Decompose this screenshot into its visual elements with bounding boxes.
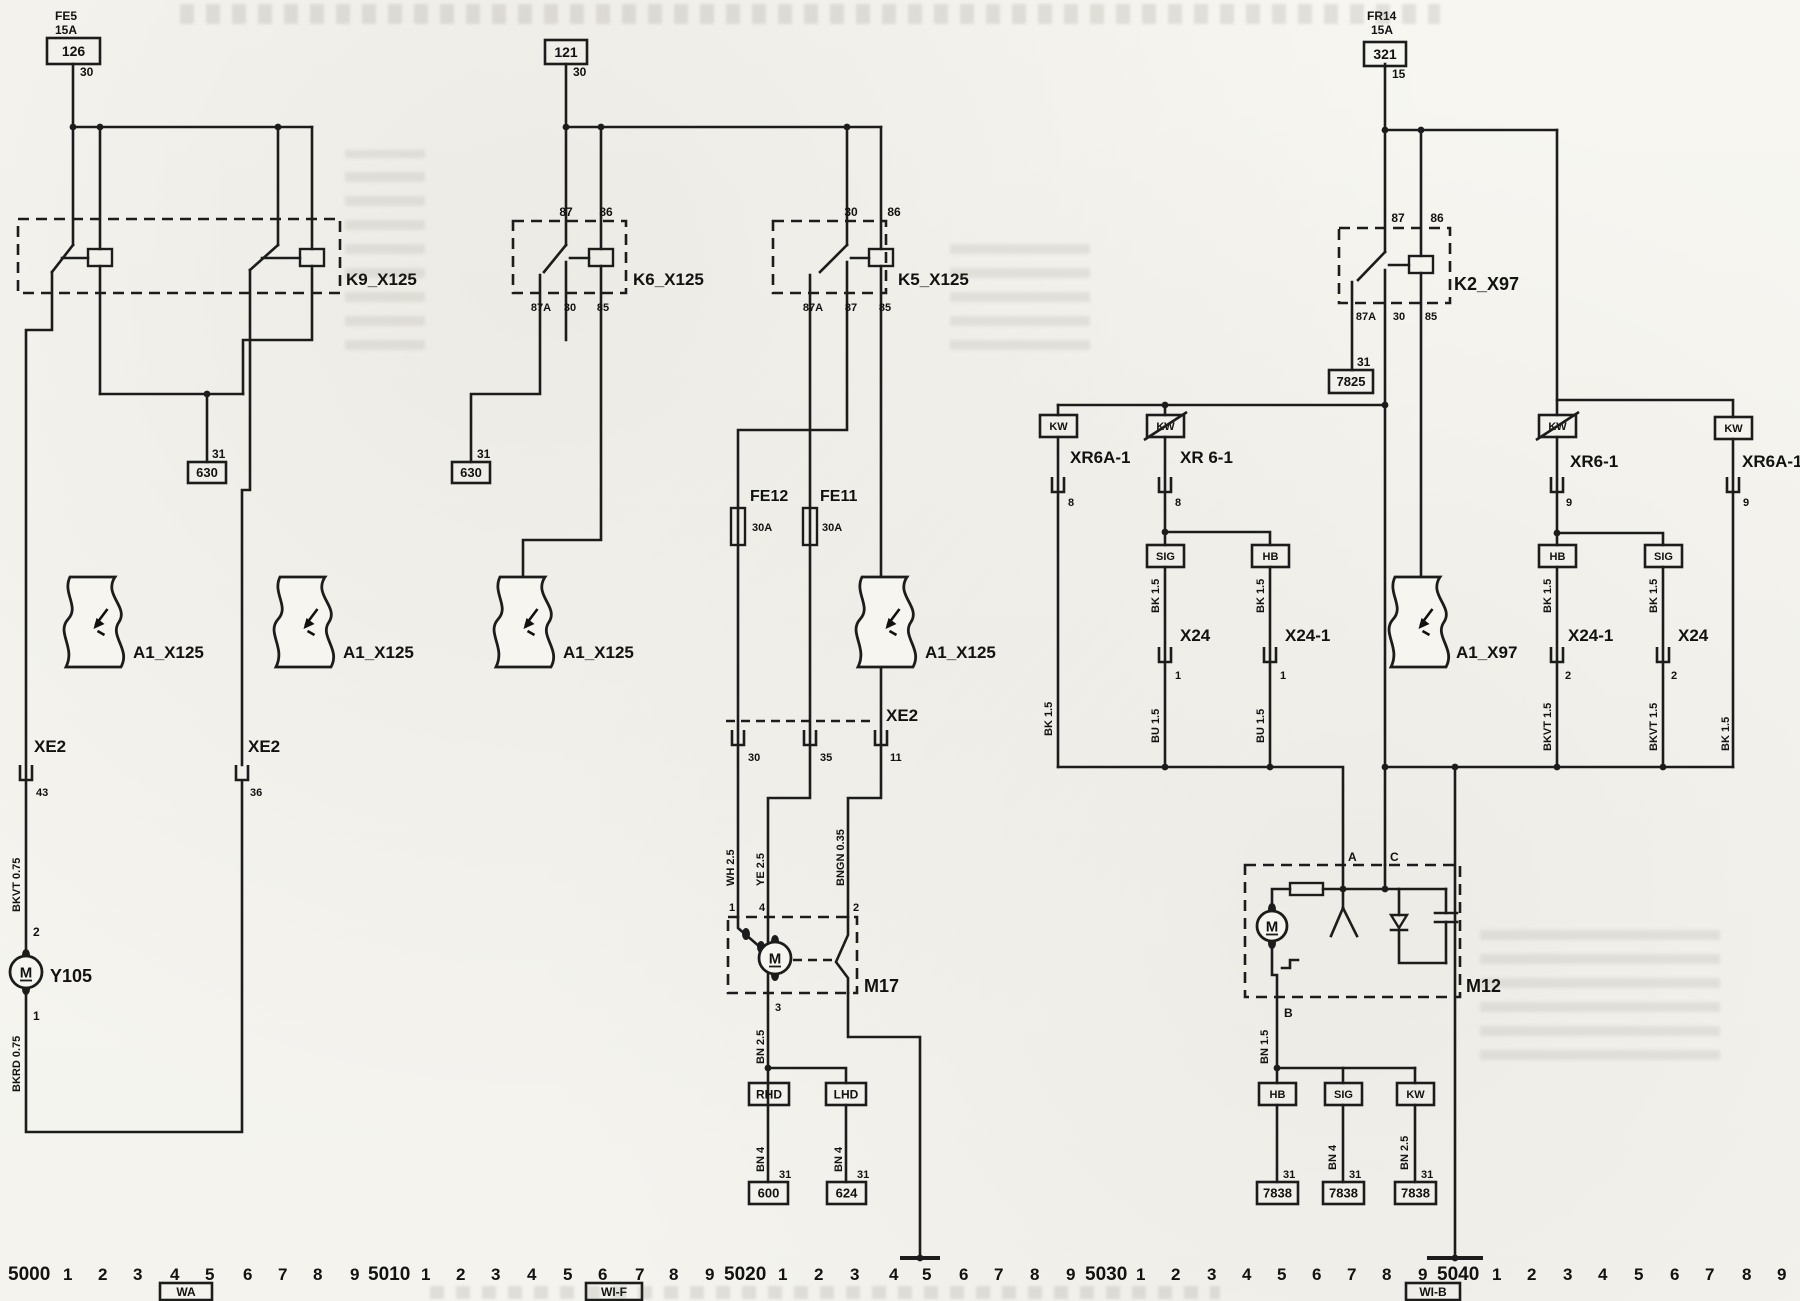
junction-dot (1452, 764, 1459, 771)
label-xr6-1: XR6-1 (1570, 452, 1618, 471)
track-number: 9 (1066, 1265, 1075, 1284)
track-number: 5000 (8, 1264, 50, 1285)
label-bk-1-5: BK 1.5 (1648, 579, 1660, 613)
wire-m12-step (1282, 960, 1298, 968)
ground-box-630-left-label: 630 (196, 465, 218, 480)
junction-dot (1162, 529, 1169, 536)
label-ye-2-5: YE 2.5 (755, 853, 767, 886)
junction-dot (844, 124, 851, 131)
label-30a: 30A (822, 522, 842, 534)
ground-box-624-label: 624 (836, 1186, 858, 1201)
track-number: 5 (922, 1265, 931, 1284)
junction-dot (1162, 764, 1169, 771)
relay-coil (589, 249, 613, 266)
label-bk-1-5: BK 1.5 (1542, 579, 1554, 613)
label-xe2: XE2 (248, 737, 280, 756)
track-number: 3 (491, 1265, 500, 1284)
label-bu-1-5: BU 1.5 (1255, 709, 1267, 743)
label-31: 31 (1349, 1169, 1361, 1181)
label-30: 30 (844, 205, 858, 219)
schematic-svg: 1261213216306307825600624783878387838KWK… (0, 0, 1800, 1301)
label-8: 8 (1068, 497, 1074, 509)
label-k2-x97: K2_X97 (1454, 274, 1519, 294)
label-a1-x125: A1_X125 (925, 643, 996, 662)
track-number: 2 (814, 1265, 823, 1284)
tear-a1x125-1 (64, 577, 124, 667)
track-number: 5030 (1085, 1264, 1127, 1285)
track-number: 1 (1136, 1265, 1145, 1284)
label-fe5: FE5 (55, 9, 77, 23)
ground-box-7838-c-label: 7838 (1401, 1186, 1430, 1201)
label-87: 87 (559, 205, 573, 219)
code-box-121-label: 121 (554, 44, 578, 60)
label-87a: 87A (1356, 311, 1376, 323)
track-number: 7 (635, 1265, 644, 1284)
track-number: 4 (170, 1265, 180, 1284)
wire-m17-pin2-int (836, 917, 848, 993)
tear-a1x125-3 (494, 577, 554, 667)
label-9: 9 (1743, 497, 1749, 509)
relay-coil (300, 249, 324, 266)
code-box-sig-r-label: SIG (1654, 551, 1673, 563)
label-bngn-0-35: BNGN 0.35 (835, 829, 847, 886)
label-x24: X24 (1678, 626, 1709, 645)
label-30a: 30A (752, 522, 772, 534)
harness-box-wa-label: WA (176, 1285, 196, 1299)
ground-box-600-label: 600 (758, 1186, 780, 1201)
track-number: 4 (527, 1265, 537, 1284)
track-number: 5040 (1437, 1264, 1479, 1285)
track-number: 4 (1598, 1265, 1608, 1284)
label-x24-1: X24-1 (1568, 626, 1613, 645)
track-number: 3 (850, 1265, 859, 1284)
label-bn-2-5: BN 2.5 (755, 1030, 767, 1064)
label-31: 31 (477, 447, 491, 461)
code-box-hb-b-label: HB (1270, 1089, 1286, 1101)
label-bn-4: BN 4 (833, 1146, 845, 1172)
label-1: 1 (1280, 670, 1286, 682)
junction-dot (1340, 886, 1347, 893)
label-43: 43 (36, 787, 48, 799)
label-k9-x125: K9_X125 (346, 270, 417, 289)
code-box-kw-b-label: KW (1406, 1089, 1425, 1101)
ground-box-7838-b-label: 7838 (1329, 1186, 1358, 1201)
label-36: 36 (250, 787, 262, 799)
label-1: 1 (729, 902, 735, 914)
wiring-diagram-page: 1261213216306307825600624783878387838KWK… (0, 0, 1800, 1301)
track-number: 5020 (724, 1264, 766, 1285)
junction-dot (1382, 764, 1389, 771)
label-1: 1 (1175, 670, 1181, 682)
wire-bus-left (1058, 767, 1343, 865)
label-b: B (1284, 1006, 1293, 1020)
track-number: 7 (1347, 1265, 1356, 1284)
label-2: 2 (33, 925, 40, 939)
wire-m12-v2 (1343, 908, 1357, 936)
label-m17: M17 (864, 976, 899, 996)
track-number: 2 (456, 1265, 465, 1284)
track-number: 9 (705, 1265, 714, 1284)
track-number: 9 (350, 1265, 359, 1284)
track-number: 5010 (368, 1264, 410, 1285)
ground-box-7825-label: 7825 (1337, 374, 1366, 389)
track-number: 5 (205, 1265, 214, 1284)
track-number: 8 (1030, 1265, 1039, 1284)
label-fe11: FE11 (820, 488, 857, 505)
code-box-sig-l-label: SIG (1156, 551, 1175, 563)
wire-k9-coil2-bot (243, 266, 312, 394)
connector-xe2-36 (236, 765, 248, 780)
wire-m12-v1 (1331, 908, 1343, 936)
label-a1-x125: A1_X125 (133, 643, 204, 662)
wire-m12-motor-out (1272, 944, 1277, 997)
label-a: A (1348, 850, 1357, 864)
track-number: 6 (1670, 1265, 1679, 1284)
label-bn-4: BN 4 (1327, 1144, 1339, 1170)
label-a1-x97: A1_X97 (1456, 643, 1517, 662)
relay-coil (88, 249, 112, 266)
junction-dot (563, 124, 570, 131)
track-number: 8 (1742, 1265, 1751, 1284)
label-k5-x125: K5_X125 (898, 270, 969, 289)
relay-coil (869, 249, 893, 266)
track-number: 8 (669, 1265, 678, 1284)
label-c: C (1390, 850, 1399, 864)
track-number: 6 (1312, 1265, 1321, 1284)
label-2: 2 (1671, 670, 1677, 682)
junction-dot (1382, 127, 1389, 134)
junction-dot (1554, 530, 1561, 537)
label-31: 31 (1283, 1169, 1295, 1181)
wire-sig-hb-l-branch (1165, 532, 1270, 545)
label-87a: 87A (531, 302, 551, 314)
label-xr6a-1: XR6A-1 (1742, 452, 1800, 471)
label-1: 1 (33, 1009, 40, 1023)
code-box-hb-l-label: HB (1263, 551, 1279, 563)
label-86: 86 (887, 205, 901, 219)
track-number: 5 (1277, 1265, 1286, 1284)
label-15a: 15A (1371, 23, 1393, 37)
wire-hb-sig-r-branch (1557, 533, 1663, 545)
track-number: 6 (598, 1265, 607, 1284)
junction-dot (1418, 127, 1425, 134)
track-number: 5 (563, 1265, 572, 1284)
wire-k6-87a-out (471, 275, 540, 462)
track-number: 1 (778, 1265, 787, 1284)
label-bkvt-1-5: BKVT 1.5 (1542, 703, 1554, 751)
label-bn-2-5: BN 2.5 (1399, 1136, 1411, 1170)
label-8: 8 (1175, 497, 1181, 509)
label-bk-1-5: BK 1.5 (1720, 717, 1732, 751)
junction-dot (1267, 764, 1274, 771)
label-15a: 15A (55, 23, 77, 37)
label-87a: 87A (803, 302, 823, 314)
track-number: 3 (1207, 1265, 1216, 1284)
label-9: 9 (1566, 497, 1572, 509)
track-number: 3 (133, 1265, 142, 1284)
motor-brush-dot (742, 928, 750, 940)
label-xr-6-1: XR 6-1 (1180, 448, 1233, 467)
label-xr6a-1: XR6A-1 (1070, 448, 1130, 467)
junction-dot (1660, 764, 1667, 771)
label-fe12: FE12 (750, 488, 788, 505)
code-box-kw-4-label: KW (1724, 423, 1743, 435)
track-number: 1 (421, 1265, 430, 1284)
label-bk-1-5: BK 1.5 (1255, 579, 1267, 613)
track-number: 1 (63, 1265, 72, 1284)
track-number: 5 (1634, 1265, 1643, 1284)
junction-dot (1554, 764, 1561, 771)
code-box-sig-b-label: SIG (1334, 1089, 1353, 1101)
label-m12: M12 (1466, 976, 1501, 996)
label-bu-1-5: BU 1.5 (1150, 709, 1162, 743)
track-number: 9 (1777, 1265, 1786, 1284)
label-35: 35 (820, 752, 832, 764)
track-number: 2 (1527, 1265, 1536, 1284)
harness-box-wi-f-label: WI-F (601, 1285, 627, 1299)
label-bn-1-5: BN 1.5 (1259, 1030, 1271, 1064)
track-number: 6 (959, 1265, 968, 1284)
label-31: 31 (1357, 355, 1371, 369)
junction-dot (1162, 402, 1169, 409)
label-87: 87 (1391, 211, 1405, 225)
track-number: 1 (1492, 1265, 1501, 1284)
wire-k9a-out (26, 272, 52, 953)
tear-a1x125-4 (856, 577, 916, 667)
motor-m17-letter: M (769, 951, 782, 968)
track-number: 4 (889, 1265, 899, 1284)
wire-rhd-lhd-branch (768, 1068, 846, 1083)
label-86: 86 (599, 205, 613, 219)
label-bk-1-5: BK 1.5 (1150, 579, 1162, 613)
label-a1-x125: A1_X125 (563, 643, 634, 662)
relay-k9-box (18, 219, 340, 293)
code-box-126-label: 126 (62, 43, 86, 59)
junction-dot (598, 124, 605, 131)
junction-dot (97, 124, 104, 131)
label-31: 31 (1421, 1169, 1433, 1181)
code-box-hb-r-label: HB (1550, 551, 1566, 563)
label-wh-2-5: WH 2.5 (725, 849, 737, 886)
wire-kw-rail-right (1557, 400, 1733, 417)
label-bkrd-0-75: BKRD 0.75 (11, 1036, 23, 1092)
label-x24-1: X24-1 (1285, 626, 1330, 645)
track-number: 2 (98, 1265, 107, 1284)
track-number: 6 (243, 1265, 252, 1284)
label-bn-4: BN 4 (755, 1146, 767, 1172)
label-86: 86 (1430, 211, 1444, 225)
label-31: 31 (779, 1169, 791, 1181)
motor-m12-letter: M (1266, 919, 1279, 936)
label-15: 15 (1392, 67, 1406, 81)
label-bkvt-0-75: BKVT 0.75 (11, 858, 23, 912)
label-fr14: FR14 (1367, 9, 1397, 23)
label-31: 31 (857, 1169, 869, 1181)
wire-k2-arm (1358, 252, 1385, 280)
wire-k5-87-out (738, 262, 847, 917)
label-bk-1-5: BK 1.5 (1043, 702, 1055, 736)
label-30: 30 (748, 752, 760, 764)
label-bkvt-1-5: BKVT 1.5 (1648, 703, 1660, 751)
junction-dot (204, 391, 211, 398)
track-number: 3 (1563, 1265, 1572, 1284)
track-number: 7 (278, 1265, 287, 1284)
junction-dot (275, 124, 282, 131)
track-number: 2 (1171, 1265, 1180, 1284)
tear-a1x125-2 (274, 577, 334, 667)
label-11: 11 (890, 752, 902, 764)
wire-k6-arm (544, 245, 566, 272)
wire-k5-arm (820, 245, 847, 272)
label-a1-x125: A1_X125 (343, 643, 414, 662)
label-2: 2 (853, 902, 859, 914)
m12-diode-triangle (1391, 915, 1407, 928)
label-y105: Y105 (50, 966, 92, 986)
variant-box-rhd-label: RHD (756, 1087, 782, 1101)
label-30: 30 (1393, 311, 1405, 323)
label-xe2: XE2 (886, 706, 918, 725)
junction-dot (1382, 886, 1389, 893)
label-30: 30 (573, 65, 587, 79)
label-xe2: XE2 (34, 737, 66, 756)
motor-y105-letter: M (20, 965, 33, 982)
junction-dot (1382, 402, 1389, 409)
code-box-321-label: 321 (1373, 46, 1397, 62)
label-3: 3 (775, 1002, 781, 1014)
wire-m12-diode-out (1399, 930, 1446, 963)
label-87: 87 (845, 302, 857, 314)
label-2: 2 (1565, 670, 1571, 682)
track-number: 9 (1418, 1265, 1427, 1284)
harness-box-wi-b-label: WI-B (1419, 1285, 1447, 1299)
label-85: 85 (597, 302, 609, 314)
junction-dot (70, 124, 77, 131)
label-4: 4 (759, 902, 766, 914)
label-30: 30 (564, 302, 576, 314)
label-85: 85 (879, 302, 891, 314)
m12-resistor (1290, 883, 1323, 895)
junction-dot (765, 1065, 772, 1072)
wire-k5-87a-out (768, 275, 810, 917)
wire-m17-ground-run (848, 993, 920, 1256)
label-31: 31 (212, 447, 226, 461)
label-30: 30 (80, 65, 94, 79)
code-box-kw-1-label: KW (1049, 421, 1068, 433)
wire-y105-return (26, 782, 242, 1132)
junction-dot (1274, 1065, 1281, 1072)
relay-coil (1409, 256, 1433, 273)
track-number: 8 (1382, 1265, 1391, 1284)
track-number: 4 (1242, 1265, 1252, 1284)
label-k6-x125: K6_X125 (633, 270, 704, 289)
label-x24: X24 (1180, 626, 1211, 645)
track-number: 8 (313, 1265, 322, 1284)
variant-box-lhd-label: LHD (834, 1087, 859, 1101)
label-85: 85 (1425, 311, 1437, 323)
track-number: 7 (1705, 1265, 1714, 1284)
track-number: 7 (994, 1265, 1003, 1284)
ground-box-7838-a-label: 7838 (1263, 1186, 1292, 1201)
tear-a1x97 (1389, 577, 1449, 667)
ground-box-630-mid-label: 630 (460, 465, 482, 480)
